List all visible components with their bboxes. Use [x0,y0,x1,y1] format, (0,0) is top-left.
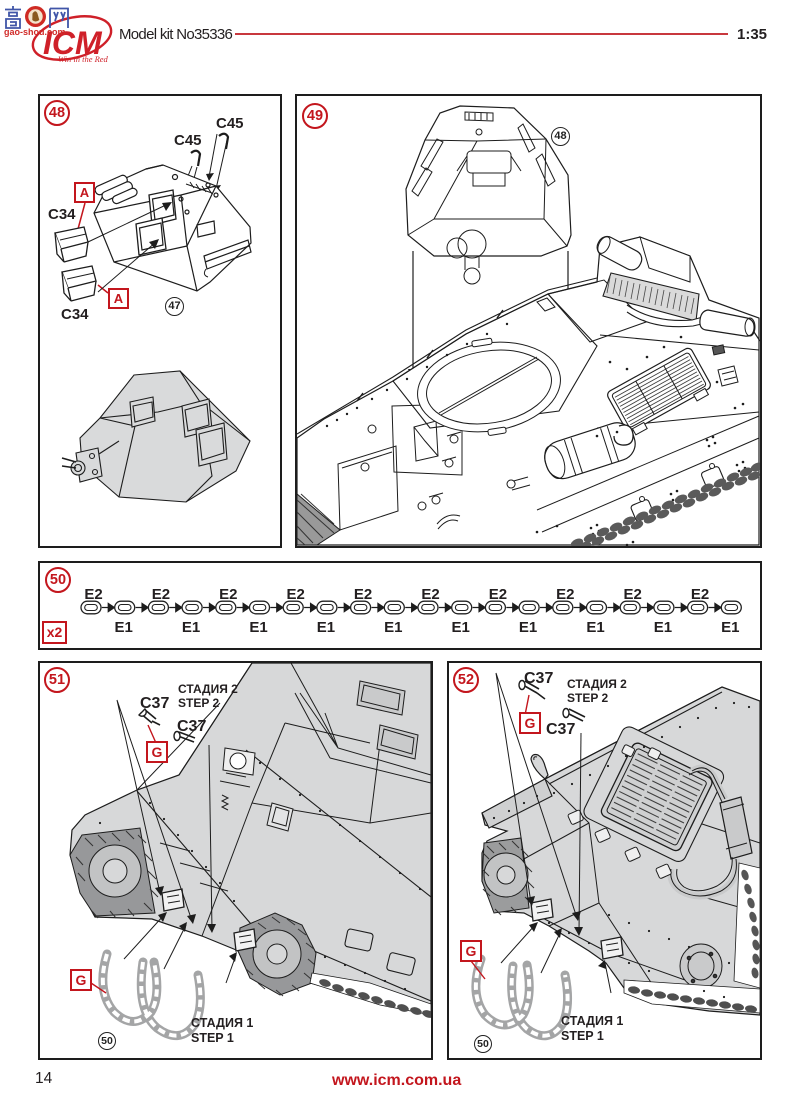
svg-text:E2: E2 [354,586,372,603]
svg-text:E2: E2 [219,586,237,603]
svg-text:E1: E1 [654,619,672,636]
svg-text:E2: E2 [421,586,439,603]
svg-text:E2: E2 [84,586,102,603]
svg-text:E1: E1 [317,619,335,636]
svg-text:E1: E1 [452,619,470,636]
svg-text:E1: E1 [586,619,604,636]
svg-text:E1: E1 [115,619,133,636]
svg-text:E2: E2 [152,586,170,603]
svg-text:E2: E2 [691,586,709,603]
svg-text:E1: E1 [519,619,537,636]
svg-text:E2: E2 [489,586,507,603]
svg-text:E1: E1 [721,619,739,636]
svg-text:E1: E1 [249,619,267,636]
svg-text:E2: E2 [287,586,305,603]
svg-text:E2: E2 [624,586,642,603]
svg-text:E1: E1 [182,619,200,636]
svg-text:Win in the Red: Win in the Red [58,54,109,64]
svg-text:E2: E2 [556,586,574,603]
svg-text:E1: E1 [384,619,402,636]
